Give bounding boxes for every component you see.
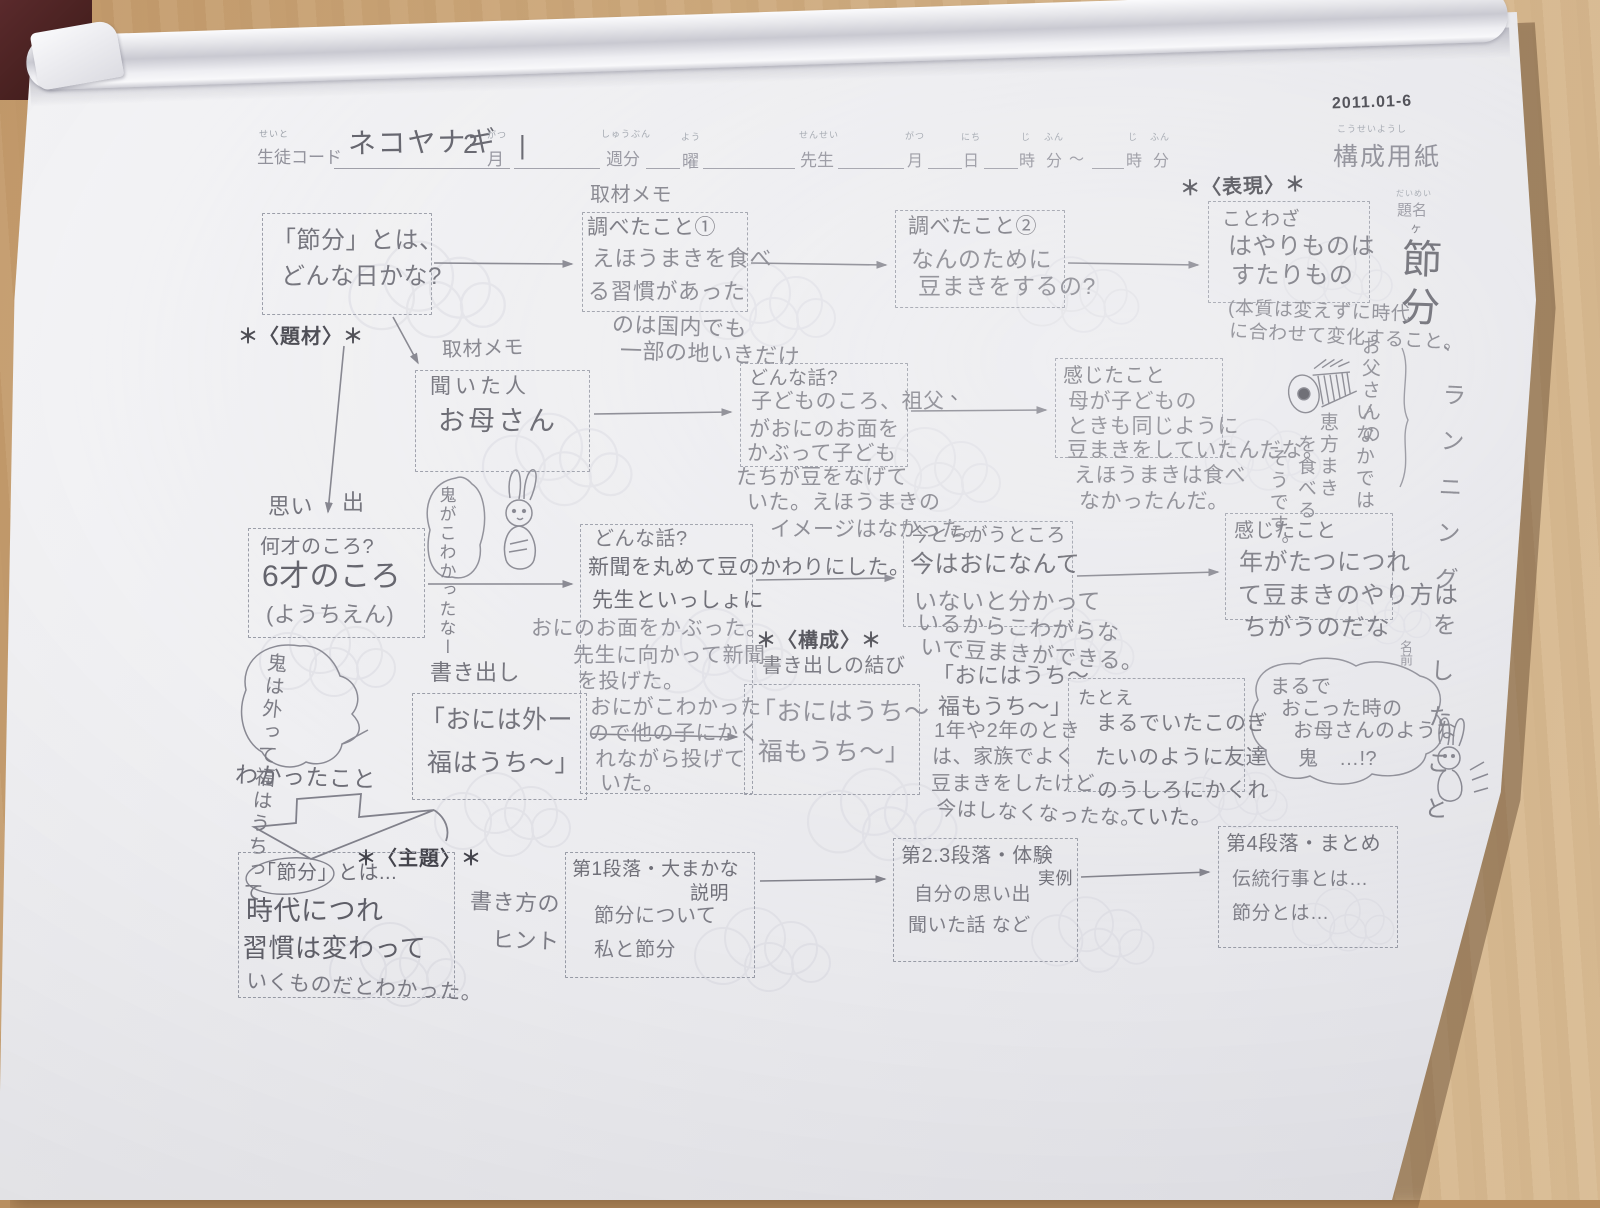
age-line1: 6才のころ [262,560,401,595]
story1-line6: イメージはなかった。 [770,518,985,542]
arrow-opening-to-closing [591,734,737,737]
date-month-furigana: がつ [905,129,925,142]
question-line1: 「節分」とは、 [272,227,444,255]
date-hour-furigana: じ [1021,130,1031,143]
repeat-line5: 豆まきをしたけど [931,773,1095,796]
box-research1 [582,212,748,312]
box-proverb [1208,201,1370,303]
story1-line2: がおにのお面を [749,418,900,442]
box-felt2 [1225,513,1393,620]
kakidashi-label: 書き出し [430,660,520,685]
story1-line1: 子どものころ、祖父 [751,390,945,414]
tag-hyogen: ＊〈表現〉＊ [1180,168,1307,201]
proverb-note2: に合わせて変化すること。 [1229,321,1464,355]
student-code-label: 生徒コード [257,143,342,168]
p1-line1: 第1段落・大まかな [572,859,739,881]
felt1-line1: 母が子どもの [1068,390,1197,414]
now-label: 今とちがうところ [910,525,1066,547]
month-label: 月 [487,145,504,170]
felt1-line3: 豆まきをしていたんだな。 [1067,439,1324,463]
name-field-label: 名前 [1396,640,1415,666]
week-label: 週分 [606,145,640,170]
week-value: | [519,131,526,161]
margin-comma: 、 [1443,334,1462,355]
story2-line2: 先生といっしょに [592,589,764,613]
p1-line2: 説明 [690,883,729,905]
now-line3: いるからこわがらな [916,610,1120,646]
story1-line5: いた。えほうまきの [747,491,941,515]
day-furigana: よう [681,130,701,143]
story2-line1: 新聞を丸めて豆のかわりにした。 [588,556,911,580]
date-min2-furigana: ふん [1150,130,1170,143]
p4-line2: 伝統行事とは… [1232,869,1369,891]
teacher-furigana: せんせい [799,128,839,141]
box-now [903,521,1073,627]
box-felt1 [1055,358,1223,458]
box-question [262,213,432,315]
wakatta-label: わかったこと [235,762,377,793]
p23-line4: 聞いた話 など [908,915,1031,937]
research1-line2: る習慣があった [588,279,746,304]
arrow-story2-to-now [756,578,894,580]
arrow-q-to-interview [393,317,418,363]
box-research2 [895,210,1065,308]
now-line1: 今はおになんて [910,551,1080,579]
arrow-q-to-memory [328,346,344,512]
felt2-line1: 年がたつにつれ [1239,549,1411,577]
p4-line3: 節分とは… [1232,903,1330,925]
arrow-q-to-research1 [434,263,572,264]
title-small-mark: ヶ [1410,222,1423,236]
age-label: 何才のころ? [260,536,374,559]
felt2-line2: て豆まきのやり方は [1238,582,1459,610]
stray-comma: 、 [950,382,971,405]
interview-label: 聞いた人 [430,375,530,399]
chant-bubble-text: 鬼は外って福はうちって [252,651,287,765]
opening-line1: 「おには外ー [420,706,573,735]
musubi-label: 書き出しの結び [762,655,906,678]
box-paragraph4 [1218,826,1398,948]
margin-note-vertical: ランニングをしたこと [1418,382,1466,843]
felt1-line5: なかったんだ。 [1079,490,1229,514]
now-line2: いないと分かって [914,588,1101,614]
memo-label-1: 取材メモ [590,184,672,207]
rabbit-doodle-1 [505,470,537,569]
marude-cloud-outline [1251,658,1443,784]
arrow-now-to-felt2 [1077,572,1218,576]
sheet-title-furigana: こうせいようし [1337,122,1407,135]
box-paragraph1 [565,852,755,978]
box-paragraph23 [893,838,1078,962]
research2-line2: 豆まきをするの? [918,273,1096,299]
interview-value: お母さん [438,406,558,437]
felt1-label: 感じたこと [1063,365,1166,388]
research2-line1: なんのために [911,246,1052,272]
tag-kousei: ＊〈構成〉＊ [756,624,882,653]
box-opening [412,693,587,800]
story2-line3: おにのお面をかぶった。 [531,617,768,641]
box-closing [744,684,920,795]
arrow-p1-to-p23 [760,879,885,881]
arrow-research1-to-research2 [751,263,886,265]
p4-line1: 第4段落・まとめ [1226,833,1381,856]
title-field-furigana: だいめい [1396,188,1432,199]
repeat-line1: 「おにはうち〜 [932,663,1090,688]
chant-cloud-outline [242,645,368,767]
felt1-line2: ときも同じように [1067,415,1239,439]
hint-label-1: 書き方の [470,888,561,916]
teacher-label: 先生 [800,146,834,171]
repeat-line4: は、家族でよく [932,746,1076,769]
felt2-line3: ちがうのだな [1243,614,1390,642]
arrow-research2-to-proverb [1068,263,1198,265]
p1-line4: 私と節分 [594,939,676,962]
week-furigana: しゅうぶん [601,127,651,140]
rabbit-doodle-2 [1438,718,1488,801]
theme-line2: 時代につれ [246,896,384,927]
opening-line2: 福はうち〜」 [427,749,580,778]
month-furigana: がつ [487,128,507,141]
p23-line3: 自分の思い出 [914,884,1031,906]
ehomaki-note-col4: を食べる [1294,434,1316,522]
box-story1 [740,363,908,467]
marude-line1: まるで [1270,676,1332,699]
ehomaki-note-col3: 恵方まき [1316,412,1338,500]
simile-line3: のうしろにかくれ [1097,779,1269,803]
hint-label-2: ヒント [492,927,560,955]
box-simile [1068,678,1245,792]
box-theme [238,852,455,998]
repeat-line2: 福もうち〜」 [938,694,1072,719]
theme-line4: いくものだとわかった。 [246,970,483,1006]
date-day-furigana: にち [961,130,981,143]
story2-line4: 先生に向かって新聞 [573,644,765,668]
simile-label: たとえ [1078,688,1134,709]
research1-label: 調べたこと① [587,216,716,240]
arrow-p23-to-p4 [1081,872,1209,877]
scared-speech-bubble-outline [427,477,484,578]
story2-line7: ので他の子にかく [588,722,760,746]
box-age [248,528,425,638]
tag-shudai: ＊〈主題〉＊ [356,842,482,871]
scared-bubble-text: 鬼がこわかったなー [436,486,456,570]
date-month-label: 月 [907,147,923,171]
code-furigana: せいと [259,127,289,140]
story2-line9: いた。 [600,772,665,796]
date-min-label: 分 [1046,147,1062,171]
written-title-vertical: 節分 [1392,237,1441,335]
ehomaki-note-col5: そうです。 [1266,448,1288,558]
flow-arrows [328,263,1218,881]
research2-label: 調べたこと② [908,215,1037,239]
arrow-story1-to-felt1 [911,410,1046,411]
repeat-line3: 1年や2年のとき [934,720,1080,743]
p1-line3: 節分について [594,905,716,928]
student-code-value: ネコヤナギ [348,126,498,161]
month-value: 2 [463,129,479,160]
proverb-note1: (本質は変えずに時代 [1228,298,1411,326]
story1-line3: かぶって子ども [747,442,896,466]
box-story2 [580,524,753,794]
tag-daizai: ＊〈題材〉＊ [238,320,364,349]
story2-line6: おにがこわかった [590,696,762,720]
p23-line2: 実例 [1038,869,1073,889]
proverb-label: ことわざ [1222,209,1300,231]
date-hour2-label: 時 [1126,147,1142,171]
day-label: 曜 [682,147,699,172]
big-hollow-arrow [254,794,448,859]
title-field-label: 題名 [1397,199,1427,220]
corner-code: 2011.01-6 [1332,93,1413,114]
marude-line3: お母さんのような [1293,720,1457,743]
memo-label-2: 取材メモ [442,337,525,363]
research1-line1: えほうまきを食べ [592,246,772,271]
felt2-label: 感じたこと [1234,520,1337,543]
sheet-title: 構成用紙 [1333,137,1441,173]
worksheet-paper: せいと 生徒コード ネコヤナギ 2 がつ 月 | しゅうぶん 週分 よう 曜 せ… [0,0,1600,1200]
photo-of-worksheet: せいと 生徒コード ネコヤナギ 2 がつ 月 | しゅうぶん 週分 よう 曜 せ… [0,0,1600,1200]
tilde: 〜 [1069,148,1084,169]
closing-line2: 福もうち〜」 [758,738,910,767]
simile-line2: たいのように友達 [1095,746,1267,770]
proverb-line2: すたりもの [1231,262,1354,290]
marude-line4: 鬼 …!? [1298,748,1377,771]
date-hour-label: 時 [1019,147,1035,171]
story1-line4: たちが豆をなげて [736,466,908,490]
research1-line3: のは国内でも [612,312,748,342]
felt1-line4: えほうまきは食べ [1074,464,1246,488]
theme-line1: 「節分」とは... [256,862,397,885]
simile-line4: ていた。 [1126,806,1212,830]
research1-line4: 一部の地いきだけ [620,338,801,370]
memory-label-b: 出 [342,490,365,515]
date-day-label: 日 [963,147,979,171]
date-hour2-furigana: じ [1128,130,1138,143]
story2-line8: れながら投げて [595,748,746,772]
date-min2-label: 分 [1153,147,1169,171]
ehomaki-note-col1: お父さんの [1358,336,1380,446]
proverb-line1: はやりものは [1228,233,1375,261]
memory-label-a: 思い [268,494,313,519]
story2-line5: を投げた。 [577,670,685,694]
box-interview [415,370,590,472]
circle-doodle-setsubun [245,855,335,897]
curly-brace-doodle [1400,348,1408,487]
story1-label: どんな話? [749,368,838,390]
cloud-doodles [260,241,1431,1006]
closing-line1: 「おにはうち〜 [751,698,930,727]
now-line4: いで豆まきができる。 [919,634,1144,675]
marude-line2: おこった時の [1281,698,1403,721]
story2-label: どんな話? [594,528,688,551]
doodle-layer [0,0,1600,1200]
ehomaki-note-col2: いなかでは [1352,402,1374,512]
p23-line1: 第2.3段落・体験 [901,845,1053,868]
date-min-furigana: ふん [1044,130,1064,143]
age-line2: (ようちえん) [266,602,394,627]
question-line2: どんな日かな? [281,263,442,291]
simile-line1: まるでいたこのぎ [1096,712,1268,736]
repeat-line6: 今はしなくなったな。 [936,798,1142,832]
theme-line3: 習慣は変わって [242,934,426,964]
arrow-interview-to-story1 [594,412,731,414]
ehomaki-drawing [1283,354,1359,416]
